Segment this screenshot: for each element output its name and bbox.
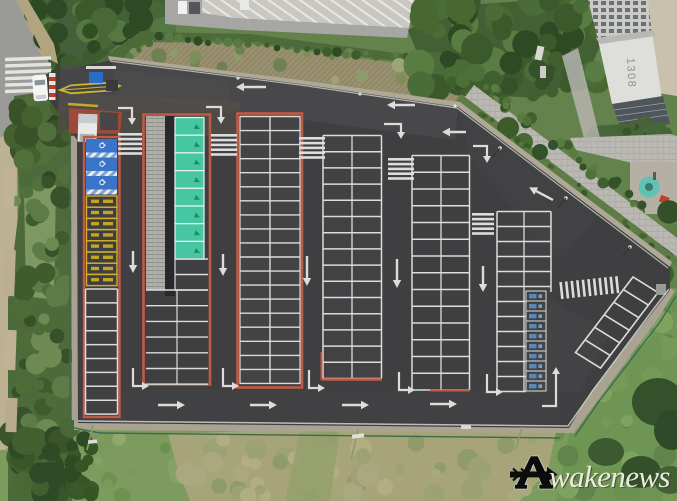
svg-text:1308: 1308 (624, 58, 638, 89)
svg-text:wakenews: wakenews (549, 459, 670, 494)
